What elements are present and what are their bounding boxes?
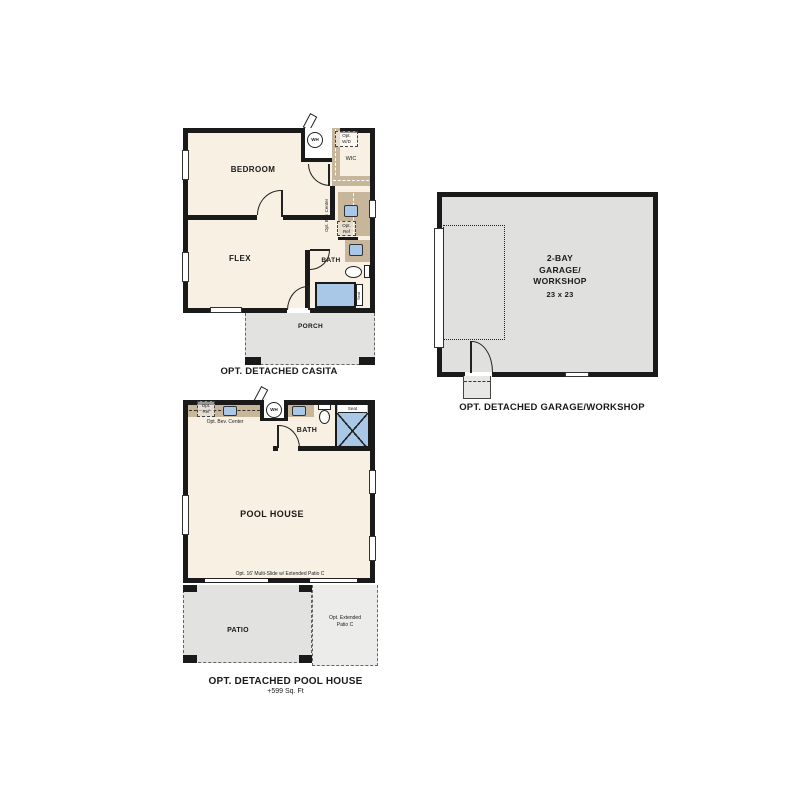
stoop-dash <box>464 381 490 382</box>
opt-bev-center-label: Opt. Bev. Center <box>191 419 259 425</box>
casita-title: OPT. DETACHED CASITA <box>193 366 365 377</box>
stoop <box>463 376 491 399</box>
window <box>369 200 376 218</box>
shower-icon: Seat <box>335 403 370 451</box>
opt-extended-patio-label: Opt. Extended Patio C <box>312 615 378 629</box>
window <box>182 252 189 282</box>
poolhouse-sqft: +599 Sq. Ft <box>183 688 388 695</box>
patio-area <box>183 585 312 663</box>
bath-sink-icon <box>292 406 306 416</box>
multi-slide-door <box>310 578 357 583</box>
wic-wall-band-bottom <box>332 176 370 186</box>
floorplan-canvas: WH WIC Opt.W/D BEDROOM FLEX Opt. Bev. Ce… <box>0 0 810 810</box>
patio-post <box>183 585 197 592</box>
garage-label-line: 2-BAY <box>495 253 625 265</box>
bath-label: BATH <box>313 257 349 264</box>
door-leaf <box>308 286 310 310</box>
water-heater-icon: WH <box>307 132 323 148</box>
garage-label-line: WORKSHOP <box>495 276 625 288</box>
porch-area <box>245 313 375 365</box>
poolhouse-title: OPT. DETACHED POOL HOUSE <box>183 676 388 687</box>
wall-segment <box>298 446 370 451</box>
patio-post <box>183 655 197 663</box>
porch-post <box>359 357 375 365</box>
wall-segment <box>188 215 257 220</box>
water-heater-icon: WH <box>266 402 282 418</box>
multi-slide-door <box>205 578 268 583</box>
garage-label-line: GARAGE/ <box>495 265 625 277</box>
bath-sink-icon <box>349 244 363 256</box>
multi-slide-label: Opt. 16' Multi-Slide w/ Extended Patio C <box>195 571 365 577</box>
shower-seat: Seat <box>338 405 367 413</box>
opt-bev-center-label: Opt. Bev. Center <box>325 192 336 238</box>
bedroom-label: BEDROOM <box>198 165 308 174</box>
wic-label: WIC <box>333 156 369 162</box>
bev-sink-icon <box>344 205 358 217</box>
shower-pan <box>337 413 368 449</box>
window <box>369 470 376 494</box>
opt-ref-label: Opt.Ref <box>197 401 215 417</box>
window <box>182 150 189 180</box>
window <box>369 536 376 561</box>
poolhouse-plan: Opt.Ref Opt. Bev. Center WH Seat BATH PO… <box>183 388 388 700</box>
shower-icon <box>315 282 356 308</box>
bev-sink-icon <box>223 406 237 416</box>
garage-room-label: 2-BAY GARAGE/ WORKSHOP 23 x 23 <box>495 253 625 300</box>
wic-band-dash <box>333 180 369 181</box>
patio-post <box>299 655 312 663</box>
toilet-icon <box>364 265 370 278</box>
patio-post <box>299 585 312 592</box>
garage-plan: 2-BAY GARAGE/ WORKSHOP 23 x 23 OPT. DETA… <box>437 177 667 422</box>
garage-dimensions: 23 x 23 <box>495 289 625 301</box>
opt-washer-dryer: Opt.W/D <box>335 131 358 147</box>
porch-label: PORCH <box>263 323 358 330</box>
casita-plan: WH WIC Opt.W/D BEDROOM FLEX Opt. Bev. Ce… <box>183 113 375 385</box>
door-leaf <box>328 164 330 186</box>
bath-label: BATH <box>285 427 329 434</box>
opt-ref-label: Opt.Ref <box>337 221 356 236</box>
pool-house-label: POOL HOUSE <box>212 509 332 519</box>
door-leaf <box>281 190 283 217</box>
patio-label: PATIO <box>198 627 278 634</box>
porch-post <box>245 357 261 365</box>
toilet-icon <box>345 266 362 278</box>
flex-label: FLEX <box>200 254 280 263</box>
window <box>210 307 242 313</box>
seat-label: Seat <box>357 286 362 306</box>
window <box>182 495 189 535</box>
garage-title: OPT. DETACHED GARAGE/WORKSHOP <box>437 402 667 413</box>
shower-seat: Seat <box>356 284 363 306</box>
window <box>565 372 589 377</box>
toilet-icon <box>319 410 330 424</box>
